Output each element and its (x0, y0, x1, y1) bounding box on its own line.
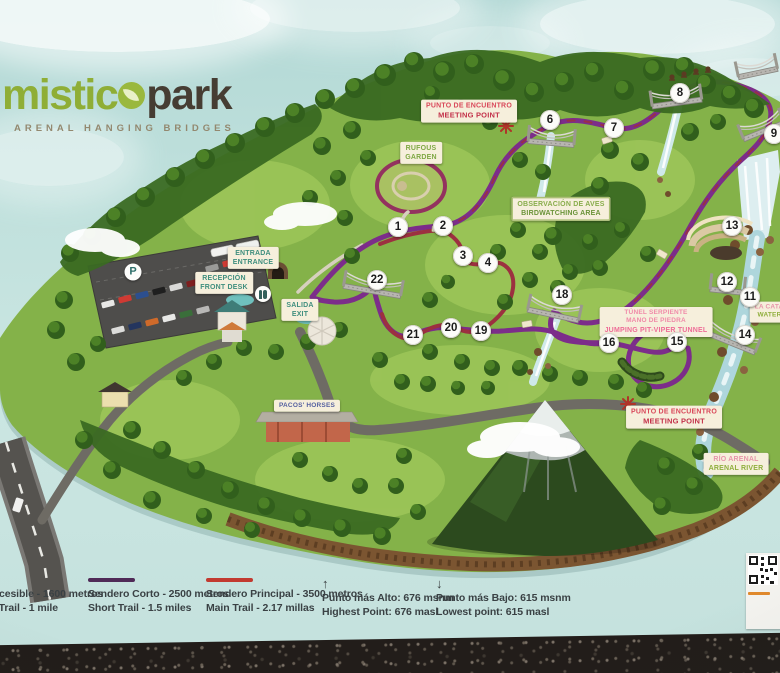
trail-marker-18: 18 (552, 285, 572, 305)
park-logo: misticopark ARENAL HANGING BRIDGES (2, 74, 235, 134)
trail-marker-7: 7 (604, 118, 624, 138)
arrow-down-icon: ↓ (436, 576, 571, 591)
qr-caption (748, 592, 770, 595)
logo-word-mistico: mistic (2, 71, 117, 119)
legend: Sendero Accesible - 1600 metrosAccessibl… (0, 576, 780, 634)
trail-marker-22: 22 (367, 270, 387, 290)
legend-item-lowest-point: ↓Punto más Bajo: 615 msnmLowest point: 6… (436, 576, 571, 619)
trail-marker-15: 15 (667, 332, 687, 352)
trail-marker-2: 2 (433, 216, 453, 236)
leaf-o-icon: o (118, 82, 145, 109)
trail-marker-13: 13 (722, 216, 742, 236)
qr-card (746, 553, 780, 629)
trail-marker-19: 19 (471, 321, 491, 341)
legend-item-highest-point: ↑Punto más Alto: 676 msnmHighest Point: … (322, 576, 454, 619)
trail-marker-11: 11 (740, 287, 760, 307)
logo-subtitle: ARENAL HANGING BRIDGES (14, 124, 235, 134)
qr-code-icon (748, 555, 778, 585)
legend-trail-swatch (206, 578, 253, 582)
trail-marker-12: 12 (717, 272, 737, 292)
legend-trail-swatch (88, 578, 135, 582)
trail-marker-9: 9 (764, 124, 780, 144)
logo-word-park: park (146, 71, 231, 119)
trail-marker-1: 1 (388, 217, 408, 237)
trail-marker-4: 4 (478, 253, 498, 273)
trail-marker-16: 16 (599, 333, 619, 353)
trail-marker-6: 6 (540, 110, 560, 130)
trail-marker-21: 21 (403, 325, 423, 345)
park-map-sign-photo: misticopark ARENAL HANGING BRIDGES P PUN… (0, 0, 780, 673)
trail-marker-3: 3 (453, 246, 473, 266)
trail-marker-14: 14 (735, 325, 755, 345)
trail-marker-20: 20 (441, 318, 461, 338)
trail-marker-8: 8 (670, 83, 690, 103)
arrow-up-icon: ↑ (322, 576, 454, 591)
